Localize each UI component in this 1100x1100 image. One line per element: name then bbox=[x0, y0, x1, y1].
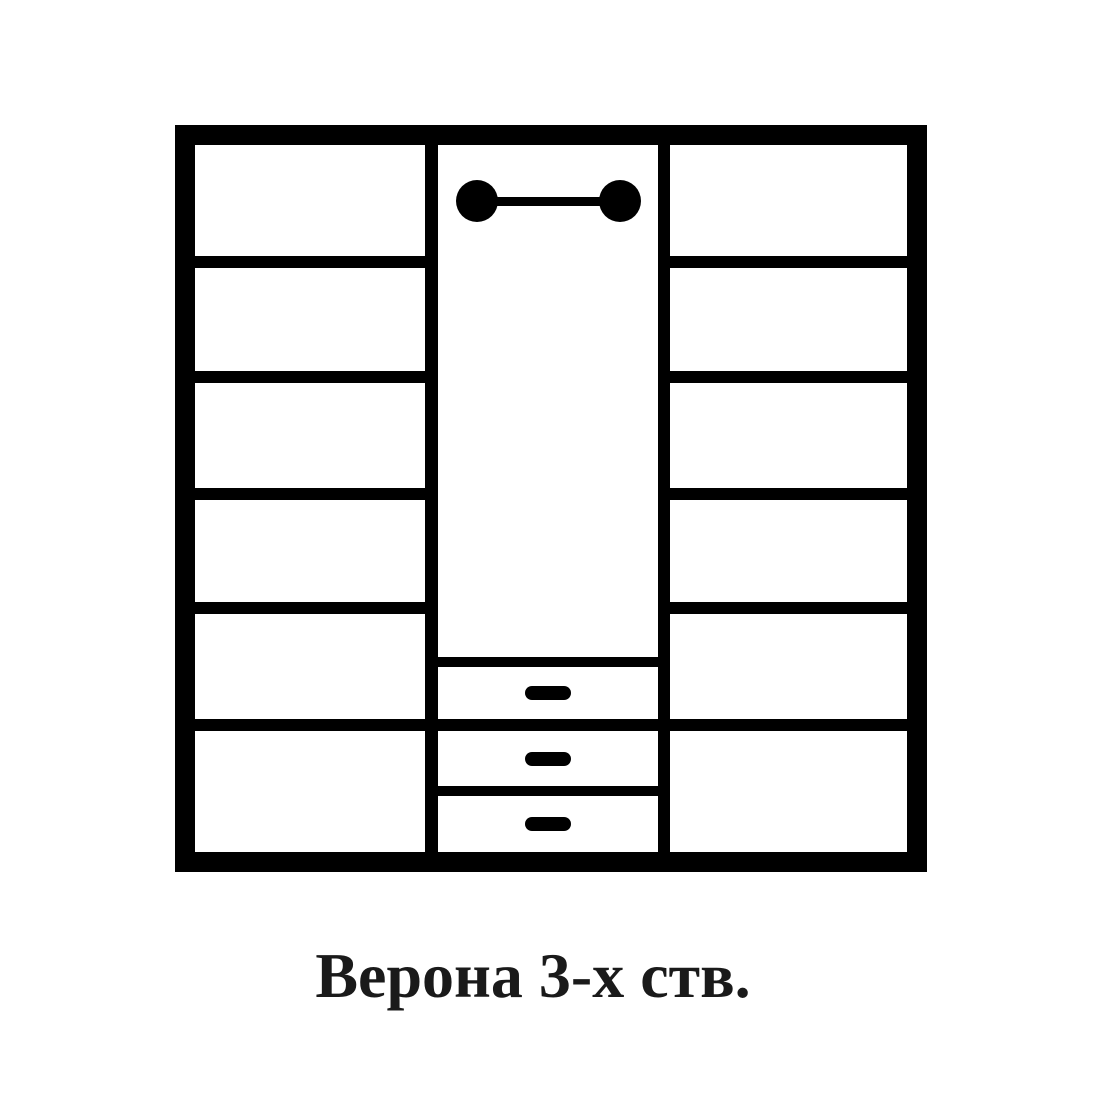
drawer-3 bbox=[438, 795, 658, 852]
left-shelf-divider-4 bbox=[195, 602, 438, 614]
hanging-compartment bbox=[438, 145, 658, 657]
wardrobe-diagram bbox=[175, 125, 927, 872]
right-shelf-divider-4 bbox=[658, 602, 907, 614]
right-shelf-divider-3 bbox=[658, 488, 907, 500]
drawer-section-top-divider bbox=[438, 657, 658, 667]
drawer-handle-icon bbox=[525, 817, 571, 831]
right-shelf-divider-1 bbox=[658, 256, 907, 268]
left-shelf-divider-2 bbox=[195, 371, 438, 383]
full-width-shelf-divider bbox=[195, 719, 907, 731]
left-shelf-divider-1 bbox=[195, 256, 438, 268]
wardrobe-interior bbox=[195, 145, 907, 852]
rod-end-right-icon bbox=[599, 180, 641, 222]
left-shelf-divider-3 bbox=[195, 488, 438, 500]
drawer-2 bbox=[438, 731, 658, 786]
hanger-rod-icon bbox=[438, 145, 658, 265]
product-caption: Верона 3-х ств. bbox=[0, 942, 1066, 1009]
page-background: Верона 3-х ств. bbox=[0, 0, 1100, 1100]
right-shelf-divider-2 bbox=[658, 371, 907, 383]
drawer-1 bbox=[438, 667, 658, 719]
drawer-handle-icon bbox=[525, 752, 571, 766]
drawer-handle-icon bbox=[525, 686, 571, 700]
